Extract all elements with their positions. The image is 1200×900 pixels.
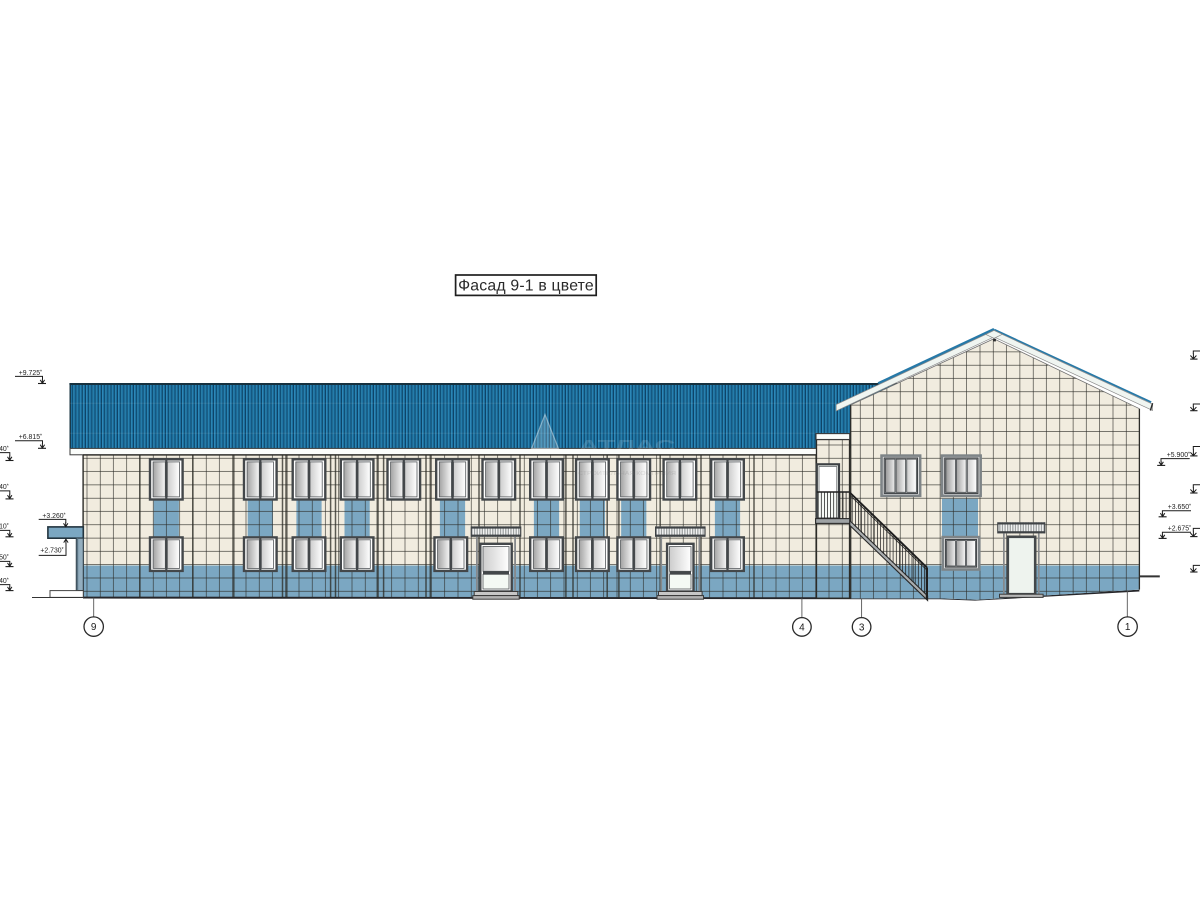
svg-text:+9.725*: +9.725*: [19, 369, 42, 377]
svg-text:СТРОИТЕЛЬНАЯ КОМПАНИЯ: СТРОИТЕЛЬНАЯ КОМПАНИЯ: [578, 471, 676, 477]
svg-text:+3.260*: +3.260*: [42, 512, 65, 520]
svg-text:+2.730*: +2.730*: [40, 547, 63, 555]
svg-text:+6.815*: +6.815*: [19, 434, 42, 442]
svg-text:9: 9: [91, 622, 97, 633]
svg-text:+5.900*: +5.900*: [1167, 451, 1190, 459]
svg-text:1: 1: [1125, 622, 1131, 633]
svg-text:4: 4: [799, 622, 805, 633]
svg-text:+2.675*: +2.675*: [1168, 525, 1191, 533]
svg-text:Фасад 9-1 в цвете: Фасад 9-1 в цвете: [458, 278, 594, 295]
svg-text:+3.650*: +3.650*: [1168, 504, 1191, 512]
svg-text:АТЛАС: АТЛАС: [579, 438, 676, 456]
svg-text:3: 3: [859, 622, 865, 633]
